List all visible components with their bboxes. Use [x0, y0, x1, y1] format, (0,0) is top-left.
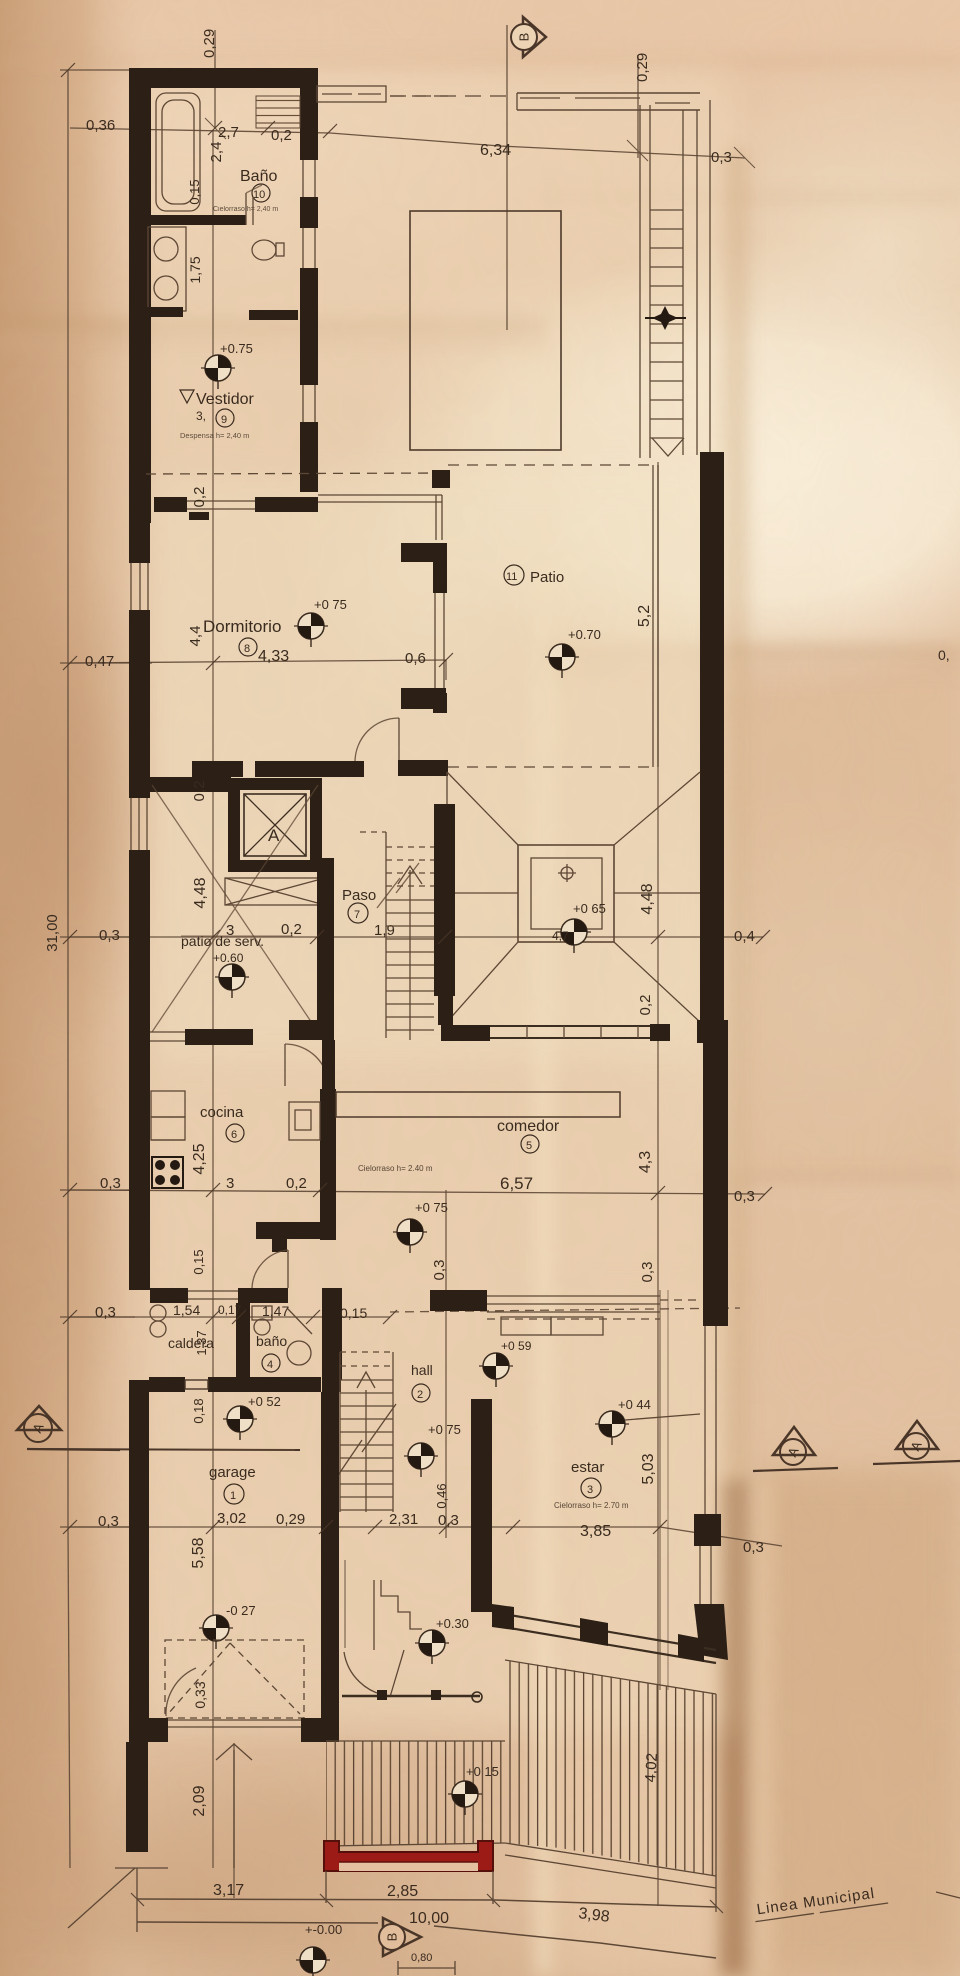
svg-text:Vestidor: Vestidor [196, 391, 254, 408]
svg-text:4,25: 4,25 [191, 1143, 208, 1174]
svg-text:9: 9 [221, 414, 227, 426]
svg-text:3: 3 [587, 1484, 593, 1496]
svg-text:0,15: 0,15 [340, 1305, 367, 1321]
svg-text:B: B [517, 33, 532, 42]
svg-text:0,29: 0,29 [201, 29, 218, 58]
svg-text:+0.60: +0.60 [213, 951, 244, 965]
svg-text:0,2: 0,2 [637, 995, 654, 1016]
svg-text:3,: 3, [196, 409, 206, 423]
svg-text:7: 7 [354, 909, 360, 921]
svg-text:10: 10 [253, 189, 265, 201]
svg-text:0,2: 0,2 [271, 127, 292, 144]
svg-text:Despensa h= 2,40 m: Despensa h= 2,40 m [180, 431, 249, 440]
svg-text:Baño: Baño [240, 168, 277, 185]
svg-text:+0 52: +0 52 [248, 1394, 281, 1409]
svg-text:0,36: 0,36 [86, 117, 115, 134]
svg-text:Paso: Paso [342, 887, 376, 904]
svg-text:1,54: 1,54 [173, 1302, 200, 1318]
svg-text:hall: hall [411, 1362, 433, 1378]
svg-text:Cielorraso h= 2.40 m: Cielorraso h= 2.40 m [358, 1164, 433, 1173]
svg-text:0,: 0, [938, 647, 950, 663]
svg-text:+0 15: +0 15 [466, 1764, 499, 1779]
svg-text:+0 75: +0 75 [415, 1200, 448, 1215]
svg-text:+0.70: +0.70 [568, 627, 601, 642]
svg-text:2,7: 2,7 [218, 124, 239, 141]
svg-text:cocina: cocina [200, 1104, 244, 1121]
svg-text:Patio: Patio [530, 569, 564, 586]
svg-text:+0.75: +0.75 [220, 341, 253, 356]
svg-text:0,3: 0,3 [100, 1175, 121, 1192]
svg-text:0,2: 0,2 [281, 921, 302, 938]
svg-text:3: 3 [226, 922, 234, 939]
svg-text:0,15: 0,15 [191, 1249, 206, 1274]
svg-text:1,37: 1,37 [194, 1330, 209, 1355]
svg-text:1,47: 1,47 [262, 1303, 289, 1319]
svg-text:3: 3 [226, 1175, 234, 1192]
svg-text:10,00: 10,00 [409, 1910, 449, 1927]
svg-text:comedor: comedor [497, 1118, 560, 1135]
svg-text:0,46: 0,46 [434, 1483, 449, 1508]
svg-text:0,3: 0,3 [438, 1512, 459, 1529]
svg-text:1,9: 1,9 [374, 922, 395, 939]
svg-text:0,3: 0,3 [734, 1188, 755, 1205]
svg-text:A: A [268, 826, 280, 845]
svg-text:4: 4 [267, 1359, 273, 1371]
svg-text:2,4: 2,4 [208, 142, 225, 163]
svg-text:0,3: 0,3 [95, 1304, 116, 1321]
svg-text:11: 11 [506, 571, 517, 583]
svg-text:5,2: 5,2 [636, 605, 653, 627]
svg-text:+0.30: +0.30 [436, 1616, 469, 1631]
svg-text:garage: garage [209, 1464, 256, 1481]
svg-text:2,31: 2,31 [389, 1511, 418, 1528]
svg-text:0,3: 0,3 [711, 149, 732, 166]
svg-text:1: 1 [230, 1490, 236, 1502]
svg-text:0,47: 0,47 [85, 653, 114, 670]
svg-text:0,6: 0,6 [405, 650, 426, 667]
svg-text:0,4: 0,4 [734, 928, 755, 945]
svg-text:6: 6 [231, 1129, 237, 1141]
svg-text:0,17: 0,17 [218, 1303, 242, 1317]
svg-text:0,2: 0,2 [286, 1175, 307, 1192]
svg-text:2: 2 [417, 1389, 423, 1401]
svg-text:6,57: 6,57 [500, 1174, 533, 1193]
svg-text:Dormitorio: Dormitorio [203, 617, 281, 636]
svg-text:B: B [385, 1933, 400, 1942]
svg-text:2,85: 2,85 [387, 1883, 418, 1900]
svg-text:3,02: 3,02 [217, 1510, 246, 1527]
svg-text:+0 59: +0 59 [501, 1339, 532, 1353]
svg-text:31,00: 31,00 [44, 914, 61, 952]
svg-text:0,3: 0,3 [98, 1513, 119, 1530]
svg-text:3,85: 3,85 [580, 1523, 611, 1540]
svg-text:0,3: 0,3 [431, 1260, 448, 1281]
svg-text:0,29: 0,29 [276, 1511, 305, 1528]
svg-text:0,3: 0,3 [639, 1262, 656, 1283]
svg-text:4,48: 4,48 [192, 877, 209, 908]
svg-text:+0 75: +0 75 [428, 1422, 461, 1437]
svg-text:+-0.00: +-0.00 [305, 1922, 342, 1937]
svg-text:2,09: 2,09 [191, 1785, 208, 1816]
svg-text:0,3: 0,3 [743, 1539, 764, 1556]
svg-text:+0 75: +0 75 [314, 597, 347, 612]
svg-text:4,3: 4,3 [637, 1151, 654, 1173]
svg-text:+0 44: +0 44 [618, 1397, 651, 1412]
svg-text:4,4: 4,4 [187, 626, 204, 647]
svg-text:5: 5 [526, 1140, 532, 1152]
svg-text:0,15: 0,15 [187, 179, 202, 204]
svg-text:4,02: 4,02 [642, 1753, 661, 1783]
svg-text:0,18: 0,18 [191, 1398, 206, 1423]
svg-text:8: 8 [244, 643, 250, 655]
svg-text:4,7: 4,7 [552, 929, 569, 943]
svg-text:0,2: 0,2 [191, 781, 208, 802]
svg-text:1,75: 1,75 [187, 256, 203, 283]
svg-text:5,58: 5,58 [190, 1537, 207, 1568]
svg-text:+0 65: +0 65 [573, 901, 606, 916]
svg-text:4,33: 4,33 [258, 648, 289, 665]
svg-text:0,2: 0,2 [191, 487, 208, 508]
svg-text:0,3: 0,3 [99, 927, 120, 944]
svg-text:4,48: 4,48 [639, 883, 656, 914]
svg-text:6,34: 6,34 [480, 142, 511, 159]
svg-text:0,80: 0,80 [411, 1952, 432, 1964]
svg-text:0,29: 0,29 [634, 53, 651, 82]
svg-text:5,03: 5,03 [640, 1453, 657, 1484]
svg-text:0,33: 0,33 [192, 1681, 208, 1708]
svg-text:3,17: 3,17 [213, 1882, 244, 1899]
svg-text:Cielorraso h= 2.70 m: Cielorraso h= 2.70 m [554, 1501, 629, 1510]
svg-text:estar: estar [571, 1459, 604, 1476]
svg-text:-0 27: -0 27 [226, 1603, 256, 1618]
